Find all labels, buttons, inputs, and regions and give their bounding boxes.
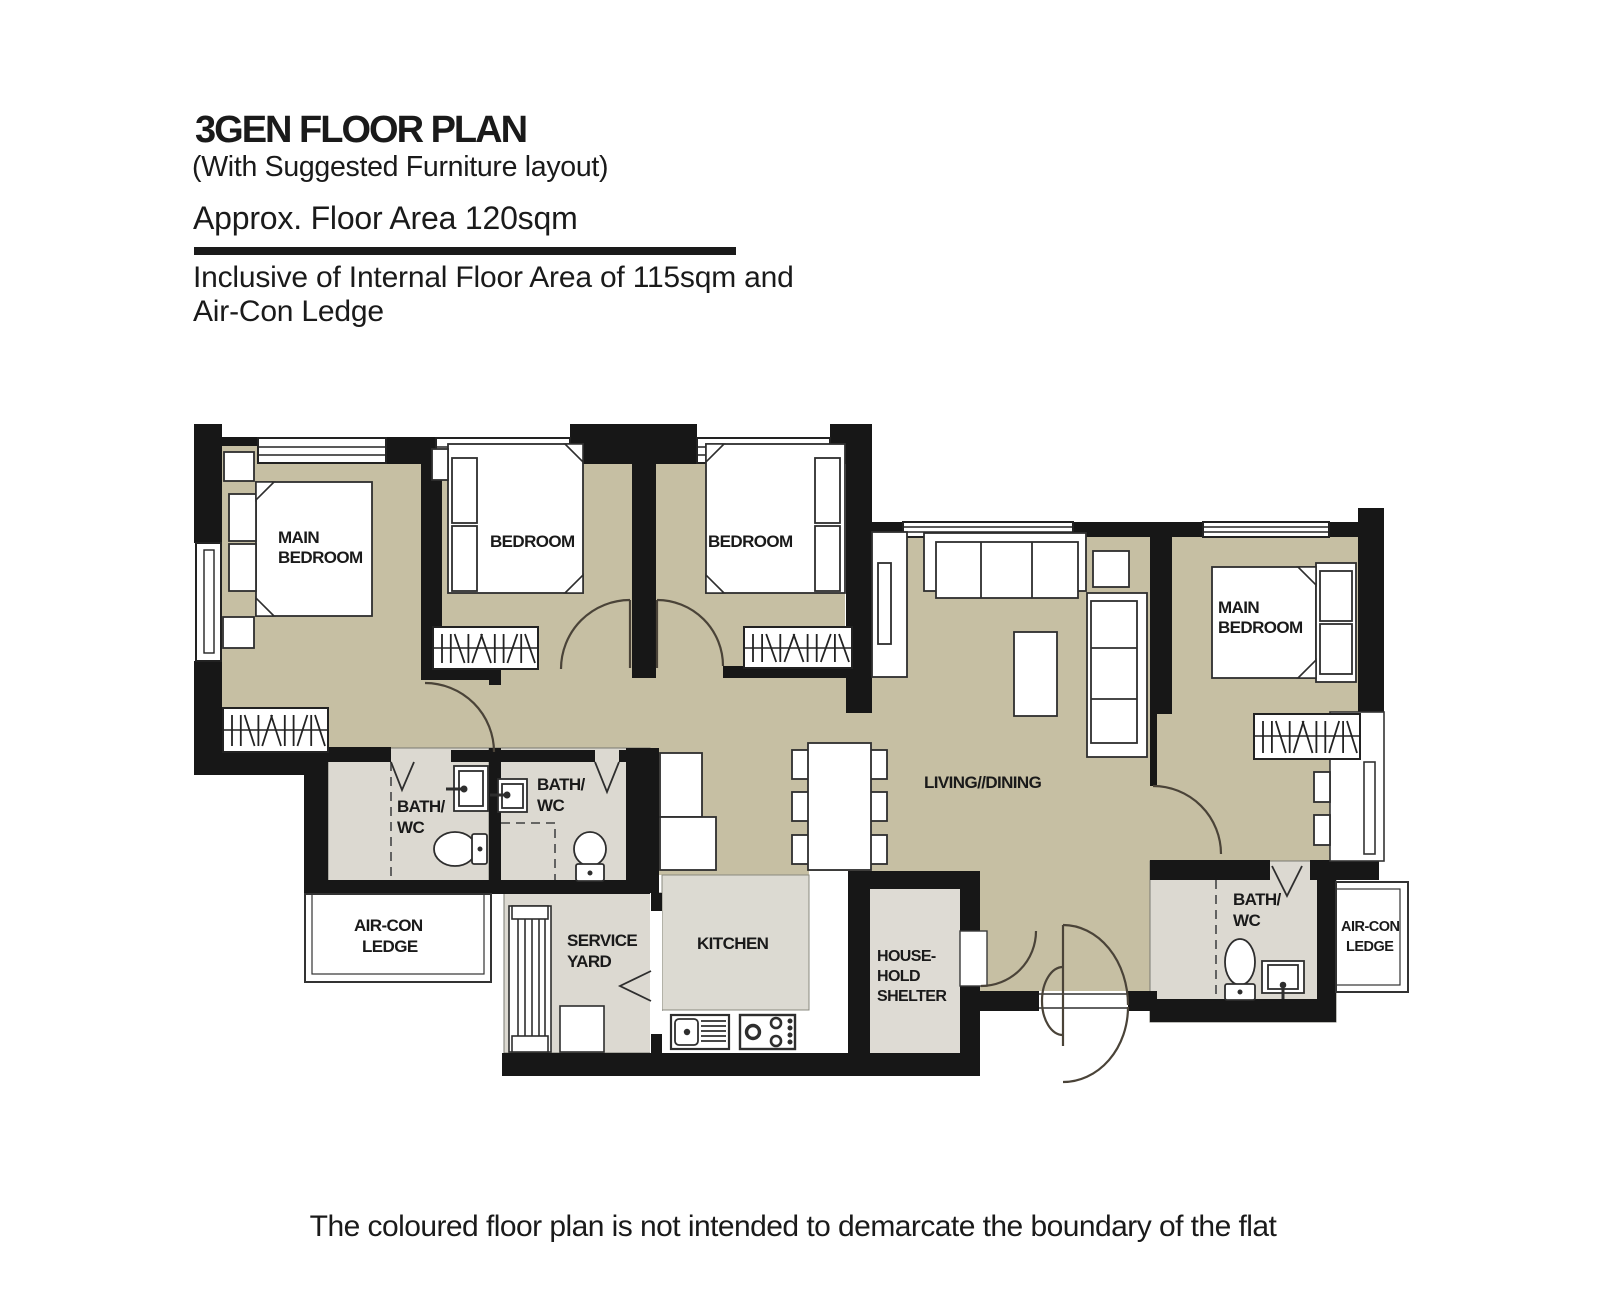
svg-text:BATH/: BATH/ <box>1233 890 1282 909</box>
svg-text:AIR-CON: AIR-CON <box>1341 919 1400 935</box>
svg-text:BEDROOM: BEDROOM <box>1218 618 1303 637</box>
svg-text:MAIN: MAIN <box>1218 598 1259 617</box>
svg-text:BATH/: BATH/ <box>397 797 446 816</box>
svg-text:SHELTER: SHELTER <box>877 988 947 1005</box>
svg-text:WC: WC <box>397 818 424 837</box>
svg-text:BEDROOM: BEDROOM <box>490 532 575 551</box>
svg-text:Approx. Floor Area 120sqm: Approx. Floor Area 120sqm <box>193 200 578 236</box>
svg-text:LIVING//DINING: LIVING//DINING <box>924 773 1042 792</box>
svg-text:HOUSE-: HOUSE- <box>877 948 936 965</box>
svg-text:Air-Con Ledge: Air-Con Ledge <box>193 295 384 328</box>
svg-text:SERVICE: SERVICE <box>567 931 637 950</box>
svg-text:BATH/: BATH/ <box>537 775 586 794</box>
svg-text:The coloured floor plan is not: The coloured floor plan is not intended … <box>310 1210 1278 1243</box>
svg-text:WC: WC <box>537 796 564 815</box>
svg-text:Inclusive of Internal Floor Ar: Inclusive of Internal Floor Area of 115s… <box>193 261 794 294</box>
svg-text:(With Suggested Furniture layo: (With Suggested Furniture layout) <box>192 151 608 183</box>
svg-text:LEDGE: LEDGE <box>1346 939 1394 955</box>
svg-text:WC: WC <box>1233 911 1260 930</box>
svg-text:YARD: YARD <box>567 952 612 971</box>
svg-text:BEDROOM: BEDROOM <box>708 532 793 551</box>
svg-text:3GEN FLOOR PLAN: 3GEN FLOOR PLAN <box>195 109 526 151</box>
svg-text:AIR-CON: AIR-CON <box>354 916 423 935</box>
svg-text:HOLD: HOLD <box>877 968 920 985</box>
svg-text:KITCHEN: KITCHEN <box>697 934 769 953</box>
svg-text:MAIN: MAIN <box>278 528 319 547</box>
svg-text:LEDGE: LEDGE <box>362 937 418 956</box>
svg-text:BEDROOM: BEDROOM <box>278 548 363 567</box>
